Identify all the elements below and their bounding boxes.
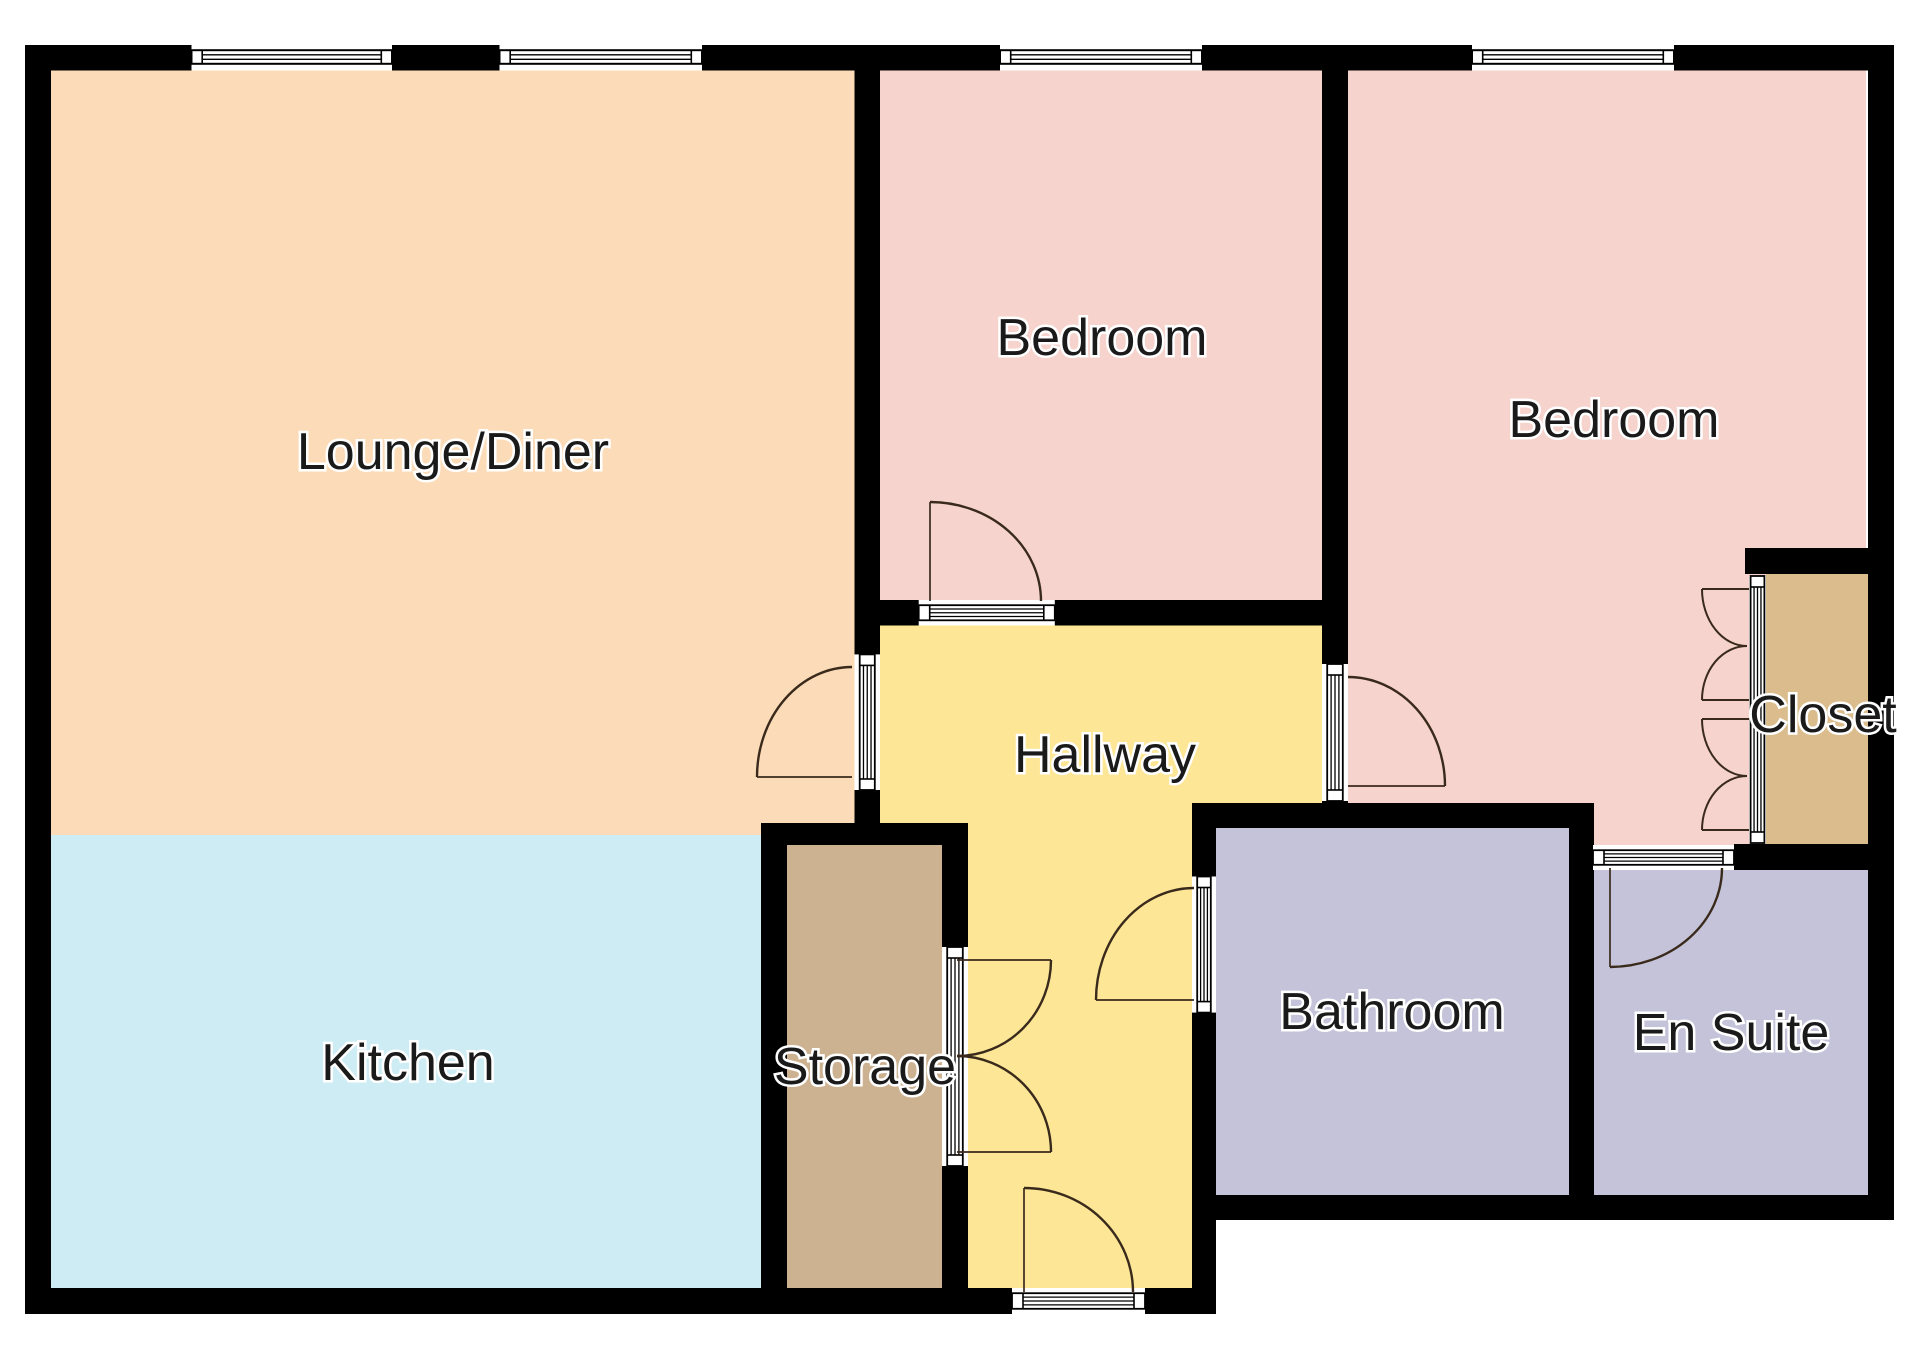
svg-text:En Suite: En Suite <box>1633 1004 1830 1062</box>
svg-text:Bedroom: Bedroom <box>1509 391 1720 449</box>
svg-text:Kitchen: Kitchen <box>321 1034 494 1092</box>
svg-text:Storage: Storage <box>774 1038 956 1096</box>
svg-text:Bedroom: Bedroom <box>997 309 1208 367</box>
svg-text:Lounge/Diner: Lounge/Diner <box>297 423 609 481</box>
svg-text:Hallway: Hallway <box>1014 726 1196 784</box>
svg-text:Closet: Closet <box>1749 686 1897 744</box>
svg-text:Bathroom: Bathroom <box>1279 983 1504 1041</box>
